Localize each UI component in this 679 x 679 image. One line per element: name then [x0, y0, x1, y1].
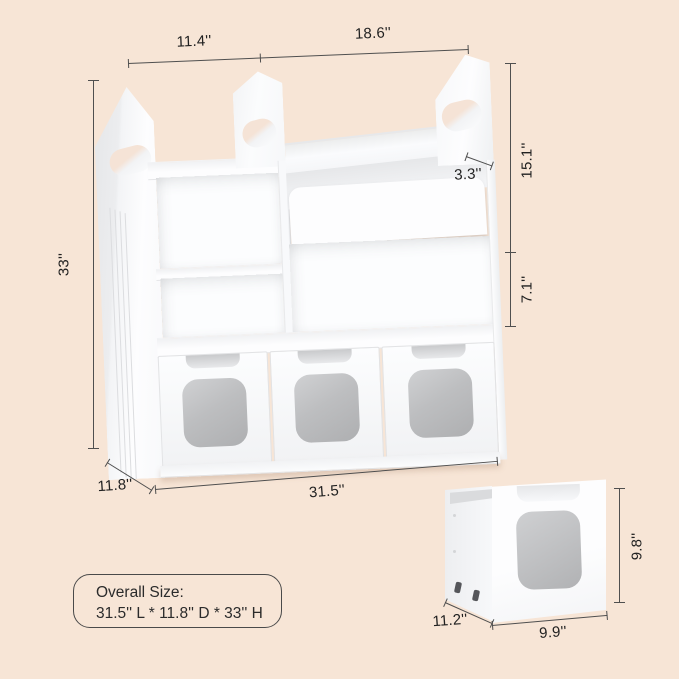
dim-label-drawer-depth: 11.2'': [423, 610, 476, 631]
dim-label-depth: 11.8'': [87, 475, 142, 496]
product-dimension-diagram: 11.4'' 18.6'' 33'' 15.1'' 7.1'' 3.3'' 31…: [0, 0, 679, 679]
rolling-drawer-notch-handle: [517, 484, 580, 502]
dim-label-height: 33'': [56, 245, 73, 285]
toy-drawer-2: [270, 347, 385, 466]
middle-tower-panel: [232, 71, 286, 169]
dim-label-width: 31.5'': [289, 480, 364, 503]
side-groove: [125, 213, 137, 485]
dim-line-drawer-height: [619, 488, 620, 603]
dim-label-drawer-height: 9.8'': [629, 517, 646, 577]
rolling-drawer-front-face: [492, 478, 606, 623]
dim-label-upper-height: 15.1'': [519, 131, 536, 191]
left-side-panel: [92, 86, 168, 480]
toy-drawer-1: [158, 351, 273, 470]
open-shelf: [289, 236, 495, 332]
drawer-window: [407, 368, 474, 439]
dim-line-height: [93, 80, 94, 449]
rolling-drawer-window: [516, 510, 583, 590]
cam-hole: [453, 550, 456, 553]
right-panel-handle-cutout: [439, 97, 485, 134]
drawer-notch-handle: [186, 354, 240, 369]
toy-drawer-3: [381, 342, 499, 461]
drawer-notch-handle: [298, 349, 352, 364]
cubby-lower: [160, 274, 284, 338]
cubby-upper: [156, 173, 282, 269]
overall-size-value: 31.5'' L * 11.8'' D * 33'' H: [96, 603, 281, 624]
dim-label-drawer-width: 9.9'': [515, 621, 590, 643]
dim-label-shelf-height: 7.1'': [519, 260, 536, 320]
overall-size-title: Overall Size:: [96, 582, 281, 603]
drawer-window: [294, 373, 361, 444]
cam-hole: [453, 514, 456, 517]
middle-panel-handle-cutout: [240, 116, 280, 151]
dim-line-right-heights: [510, 63, 511, 327]
right-side-panel: [433, 54, 494, 166]
toy-storage-organizer: [88, 52, 509, 481]
drawer-window: [182, 377, 249, 448]
drawer-notch-handle: [411, 344, 465, 359]
book-display-front-panel: [288, 176, 487, 246]
dim-label-tray-depth: 3.3'': [442, 165, 495, 185]
dim-label-top-left-width: 11.4'': [158, 31, 231, 51]
dim-label-top-right-width: 18.6'': [334, 23, 413, 43]
rolling-drawer-side-face: [445, 486, 492, 621]
overall-size-box: Overall Size: 31.5'' L * 11.8'' D * 33''…: [73, 574, 282, 628]
